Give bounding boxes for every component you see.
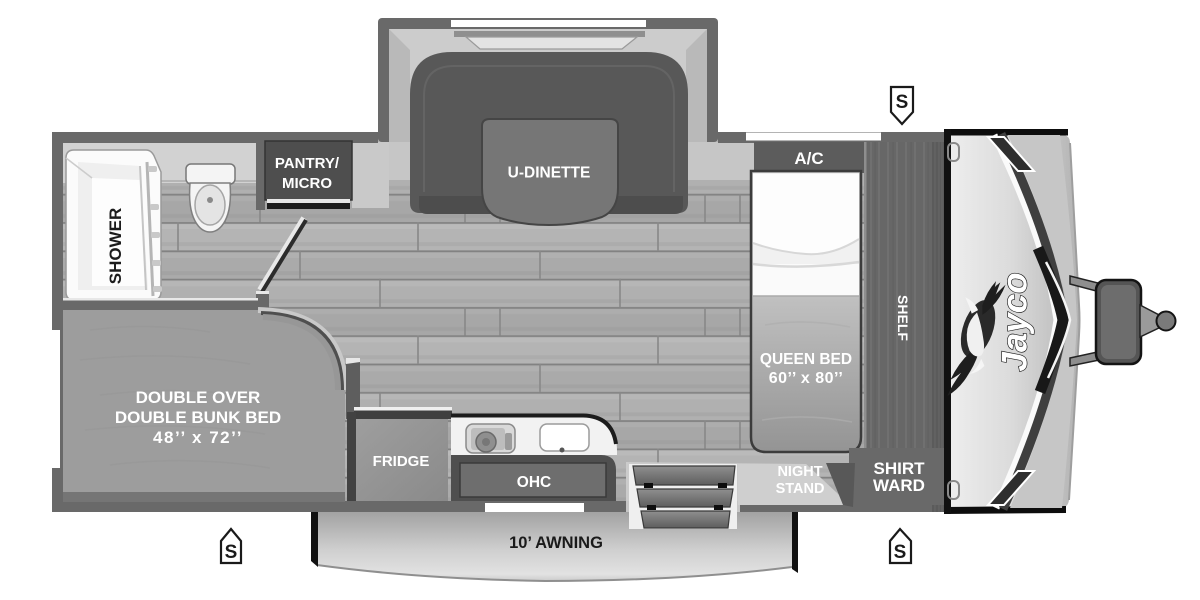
svg-text:10’ AWNING: 10’ AWNING	[509, 534, 603, 552]
svg-text:QUEEN BED: QUEEN BED	[760, 351, 852, 368]
svg-text:WARD: WARD	[873, 476, 925, 495]
svg-text:STAND: STAND	[776, 481, 825, 497]
svg-text:SHELF: SHELF	[895, 295, 911, 341]
svg-text:DOUBLE BUNK BED: DOUBLE BUNK BED	[115, 408, 281, 427]
svg-text:S: S	[896, 92, 909, 113]
svg-text:U-DINETTE: U-DINETTE	[508, 165, 591, 182]
svg-text:A/C: A/C	[794, 149, 823, 168]
svg-text:48’’ x 72’’: 48’’ x 72’’	[153, 428, 243, 447]
svg-text:S: S	[894, 542, 907, 563]
svg-text:PANTRY/: PANTRY/	[275, 155, 340, 172]
svg-text:Jayco: Jayco	[996, 272, 1035, 371]
svg-text:S: S	[225, 542, 238, 563]
svg-text:OHC: OHC	[517, 474, 551, 491]
svg-text:SHOWER: SHOWER	[106, 208, 125, 285]
svg-text:DOUBLE OVER: DOUBLE OVER	[136, 388, 261, 407]
svg-text:NIGHT: NIGHT	[777, 464, 822, 480]
svg-text:MICRO: MICRO	[282, 175, 332, 192]
svg-text:60’’ x 80’’: 60’’ x 80’’	[769, 370, 844, 387]
svg-text:FRIDGE: FRIDGE	[373, 453, 430, 470]
